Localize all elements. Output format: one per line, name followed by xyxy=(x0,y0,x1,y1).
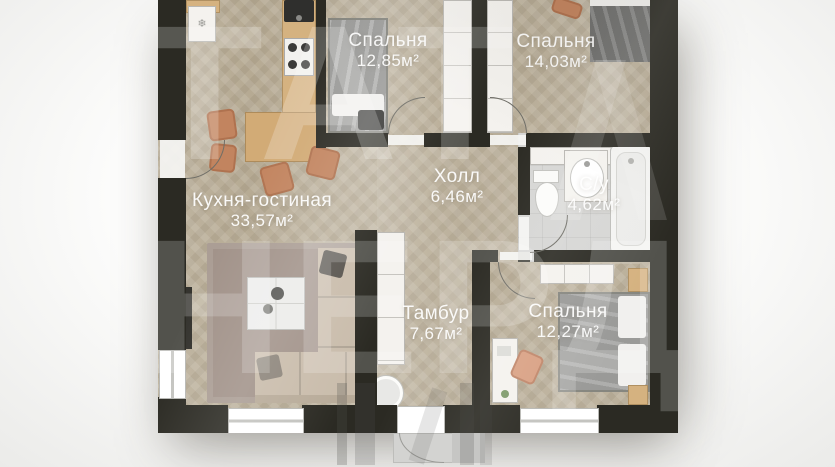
papers xyxy=(497,346,511,356)
room-label-bedroom-3: Спальня 12,27м² xyxy=(528,301,607,341)
wall xyxy=(302,405,397,433)
burner-icon xyxy=(288,60,297,69)
wall xyxy=(472,0,487,133)
wall xyxy=(326,133,388,147)
dining-table xyxy=(245,112,318,162)
room-area: 12,85м² xyxy=(348,51,427,70)
floor-plan: ❄ xyxy=(158,0,678,433)
nightstand xyxy=(628,385,648,405)
window xyxy=(159,350,186,399)
room-label-bedroom-1: Спальня 12,85м² xyxy=(348,30,427,70)
room-name: Спальня xyxy=(528,301,607,322)
wall xyxy=(518,147,530,215)
room-label-vestibule: Тамбур 7,67м² xyxy=(403,303,470,343)
entrance-door xyxy=(397,406,445,433)
room-area: 7,67м² xyxy=(403,324,470,343)
room-name: Спальня xyxy=(516,31,595,52)
door-leaf xyxy=(160,140,185,178)
wall xyxy=(158,405,228,433)
wall xyxy=(355,230,377,405)
room-area: 6,46м² xyxy=(431,187,484,206)
burner-icon xyxy=(288,43,297,52)
decor-icon xyxy=(271,287,284,300)
wall xyxy=(158,0,186,140)
faucet-icon xyxy=(296,15,302,21)
page-background: ❄ xyxy=(0,0,835,467)
door-leaf xyxy=(519,217,529,250)
porch-step xyxy=(452,433,485,463)
wall xyxy=(316,0,326,148)
bed-pillow xyxy=(618,296,646,338)
wardrobe xyxy=(443,0,472,133)
nightstand xyxy=(628,268,648,292)
coffee-table xyxy=(247,277,305,330)
decor-icon xyxy=(263,304,273,314)
wall xyxy=(534,250,650,262)
room-area: 33,57м² xyxy=(192,211,332,230)
window xyxy=(228,408,304,433)
wall xyxy=(472,250,490,405)
room-area: 14,03м² xyxy=(516,52,595,71)
wall xyxy=(424,133,490,147)
kitchen-sink xyxy=(284,0,314,22)
bed-pillow xyxy=(358,110,384,130)
burner-icon xyxy=(301,60,310,69)
room-name: Кухня-гостиная xyxy=(192,190,332,211)
wardrobe xyxy=(540,264,614,284)
room-label-bedroom-2: Спальня 14,03м² xyxy=(516,31,595,71)
bed-pillow xyxy=(618,344,646,386)
room-name: Холл xyxy=(431,166,484,187)
burner-icon xyxy=(301,43,310,52)
snowflake-icon: ❄ xyxy=(197,18,206,30)
wall xyxy=(158,178,186,350)
window xyxy=(520,408,599,433)
room-label-kitchen-living: Кухня-гостиная 33,57м² xyxy=(192,190,332,230)
bed xyxy=(590,0,650,62)
door-leaf xyxy=(388,135,424,145)
plant-icon xyxy=(501,390,509,398)
door-leaf xyxy=(500,252,532,260)
wardrobe xyxy=(377,232,405,365)
room-name: Тамбур xyxy=(403,303,470,324)
chair-icon xyxy=(206,108,238,142)
sofa-pillow xyxy=(256,354,283,381)
room-area: 12,27м² xyxy=(528,322,607,341)
wall xyxy=(443,405,520,433)
door-leaf xyxy=(490,135,526,145)
fridge: ❄ xyxy=(188,6,216,42)
stove xyxy=(284,38,314,76)
room-name: Спальня xyxy=(348,30,427,51)
room-label-hall: Холл 6,46м² xyxy=(431,166,484,206)
